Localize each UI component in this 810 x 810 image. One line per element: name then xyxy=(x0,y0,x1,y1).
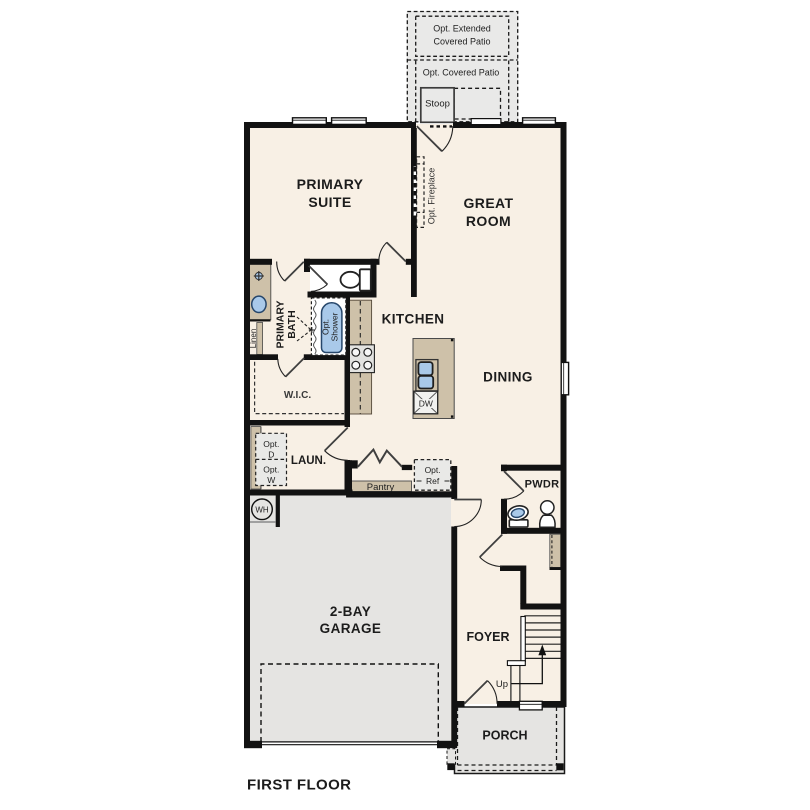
svg-text:D: D xyxy=(268,449,274,459)
svg-text:ROOM: ROOM xyxy=(466,213,511,229)
svg-text:Linen: Linen xyxy=(249,329,258,349)
svg-text:DW: DW xyxy=(419,399,433,409)
svg-text:GARAGE: GARAGE xyxy=(320,621,382,636)
svg-text:Shower: Shower xyxy=(329,312,339,341)
svg-text:2-BAY: 2-BAY xyxy=(330,604,371,619)
svg-text:FIRST FLOOR: FIRST FLOOR xyxy=(247,777,351,794)
svg-text:FOYER: FOYER xyxy=(466,630,509,644)
svg-text:Pantry: Pantry xyxy=(367,482,395,493)
svg-text:Up: Up xyxy=(496,679,508,690)
svg-text:Covered Patio: Covered Patio xyxy=(433,37,490,47)
svg-text:WH: WH xyxy=(255,505,269,514)
svg-text:Opt.: Opt. xyxy=(263,439,279,449)
svg-text:PRIMARY: PRIMARY xyxy=(297,176,364,192)
svg-text:W: W xyxy=(267,475,275,485)
svg-text:BATH: BATH xyxy=(286,310,298,338)
svg-text:Opt. Fireplace: Opt. Fireplace xyxy=(426,168,436,225)
svg-text:KITCHEN: KITCHEN xyxy=(382,312,445,327)
svg-text:Stoop: Stoop xyxy=(425,99,450,110)
svg-text:PORCH: PORCH xyxy=(482,728,527,742)
svg-text:PWDR: PWDR xyxy=(525,478,560,490)
svg-text:DINING: DINING xyxy=(483,370,533,385)
svg-text:Opt.: Opt. xyxy=(263,465,279,475)
svg-text:Opt. Covered Patio: Opt. Covered Patio xyxy=(423,68,500,78)
svg-text:SUITE: SUITE xyxy=(308,194,351,210)
svg-text:LAUN.: LAUN. xyxy=(291,455,326,467)
svg-text:W.I.C.: W.I.C. xyxy=(284,390,311,401)
svg-text:GREAT: GREAT xyxy=(464,195,514,211)
svg-text:Opt.: Opt. xyxy=(425,465,441,475)
svg-text:Ref: Ref xyxy=(426,476,440,486)
svg-text:Opt. Extended: Opt. Extended xyxy=(433,24,491,34)
svg-text:PRIMARY: PRIMARY xyxy=(275,300,287,348)
